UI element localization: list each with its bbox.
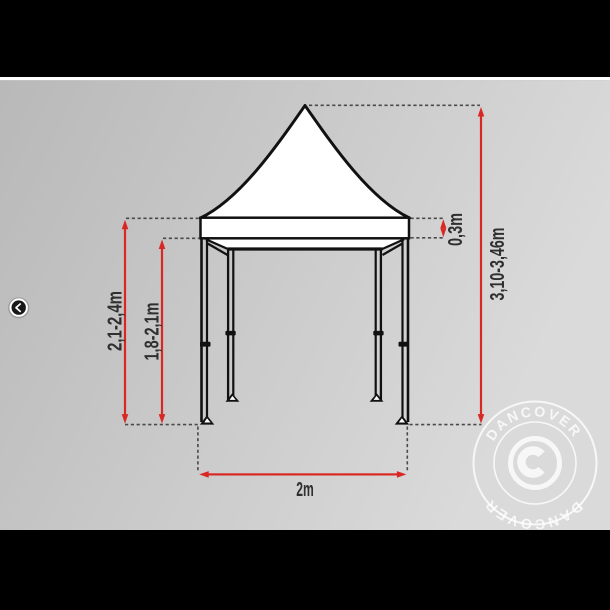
- svg-text:3,10-3,46m: 3,10-3,46m: [487, 228, 509, 301]
- svg-text:2,1-2,4m: 2,1-2,4m: [105, 291, 127, 351]
- svg-text:1,8-2,1m: 1,8-2,1m: [142, 303, 164, 361]
- svg-text:2m: 2m: [296, 479, 314, 501]
- svg-text:0,3m: 0,3m: [445, 213, 467, 246]
